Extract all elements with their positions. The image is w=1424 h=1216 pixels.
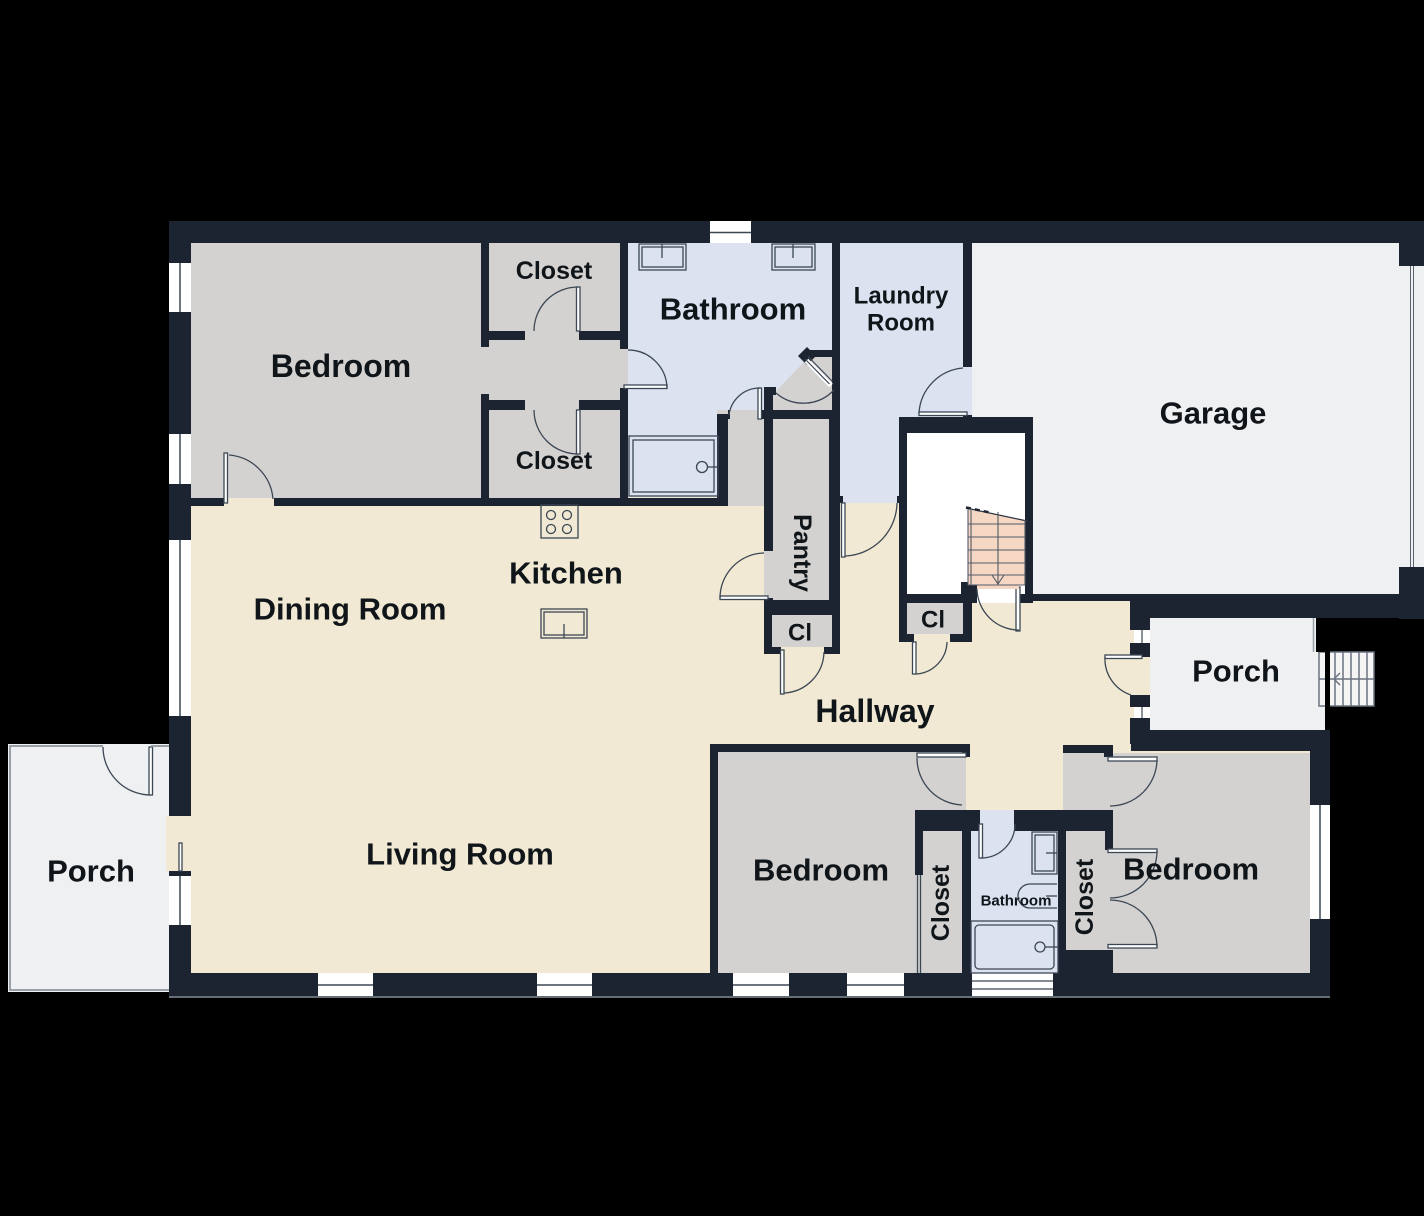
svg-text:Laundry: Laundry [854, 283, 949, 310]
svg-text:Garage: Garage [1160, 396, 1267, 431]
svg-text:Closet: Closet [927, 864, 955, 941]
svg-text:Cl: Cl [788, 620, 812, 647]
svg-text:Bathroom: Bathroom [981, 893, 1052, 910]
svg-text:Bedroom: Bedroom [1123, 852, 1259, 887]
svg-text:Dining Room: Dining Room [254, 592, 447, 627]
svg-text:Pantry: Pantry [788, 514, 816, 592]
svg-text:Bedroom: Bedroom [753, 853, 889, 888]
svg-text:Room: Room [867, 310, 935, 337]
svg-text:Bathroom: Bathroom [660, 292, 806, 327]
svg-text:Porch: Porch [47, 854, 135, 889]
svg-text:Closet: Closet [516, 447, 593, 475]
svg-text:Kitchen: Kitchen [509, 556, 623, 591]
svg-text:Closet: Closet [516, 257, 593, 285]
svg-text:Living Room: Living Room [366, 837, 554, 872]
svg-text:Hallway: Hallway [815, 693, 934, 729]
svg-text:Porch: Porch [1192, 654, 1280, 689]
svg-text:Bedroom: Bedroom [271, 348, 411, 384]
svg-text:Cl: Cl [921, 607, 945, 634]
svg-text:Closet: Closet [1071, 858, 1099, 935]
